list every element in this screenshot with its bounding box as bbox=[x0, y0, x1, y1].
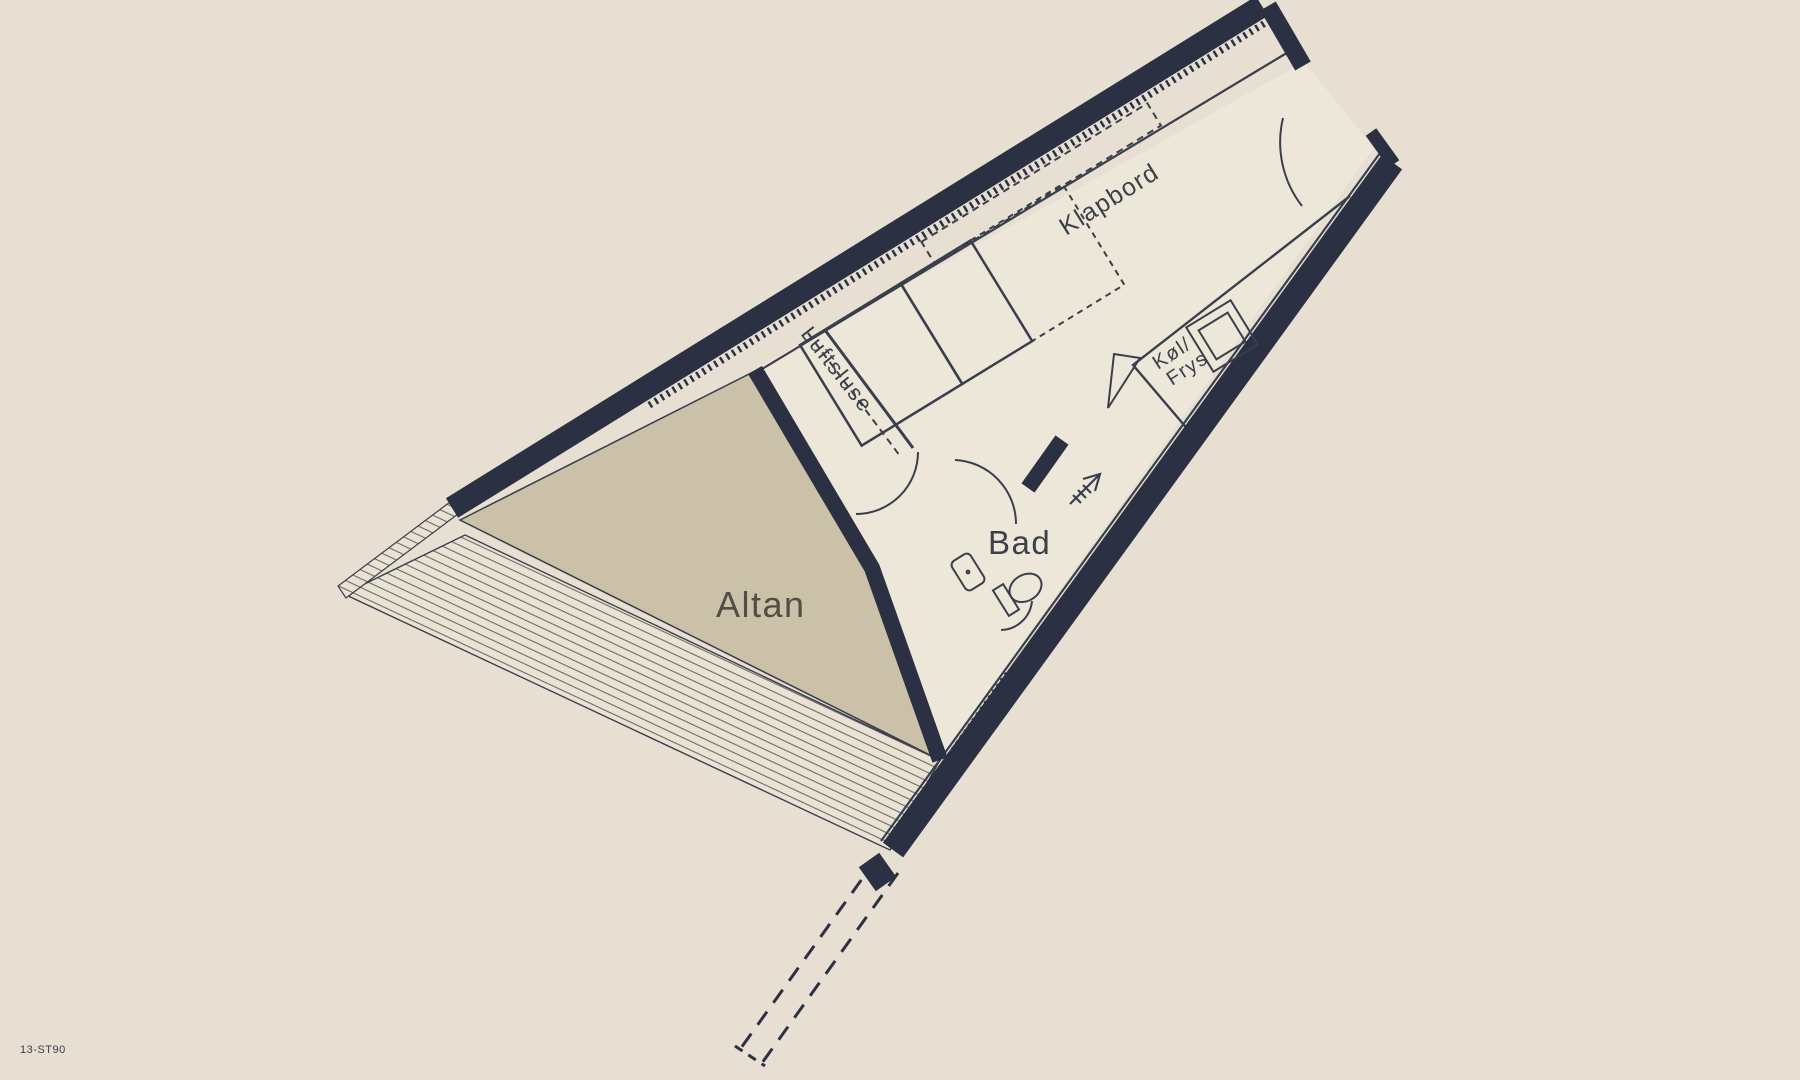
room-label-altan: Altan bbox=[716, 584, 806, 625]
room-label-bad: Bad bbox=[988, 524, 1051, 561]
drawing-number: 13-ST90 bbox=[20, 1044, 66, 1056]
floor-plan-canvas: Altan Bad Luftsluse Klapbord Køl/ Frys 1… bbox=[0, 0, 1800, 1080]
floor-plan-drawing: Altan Bad Luftsluse Klapbord Køl/ Frys 1… bbox=[0, 0, 1800, 1080]
